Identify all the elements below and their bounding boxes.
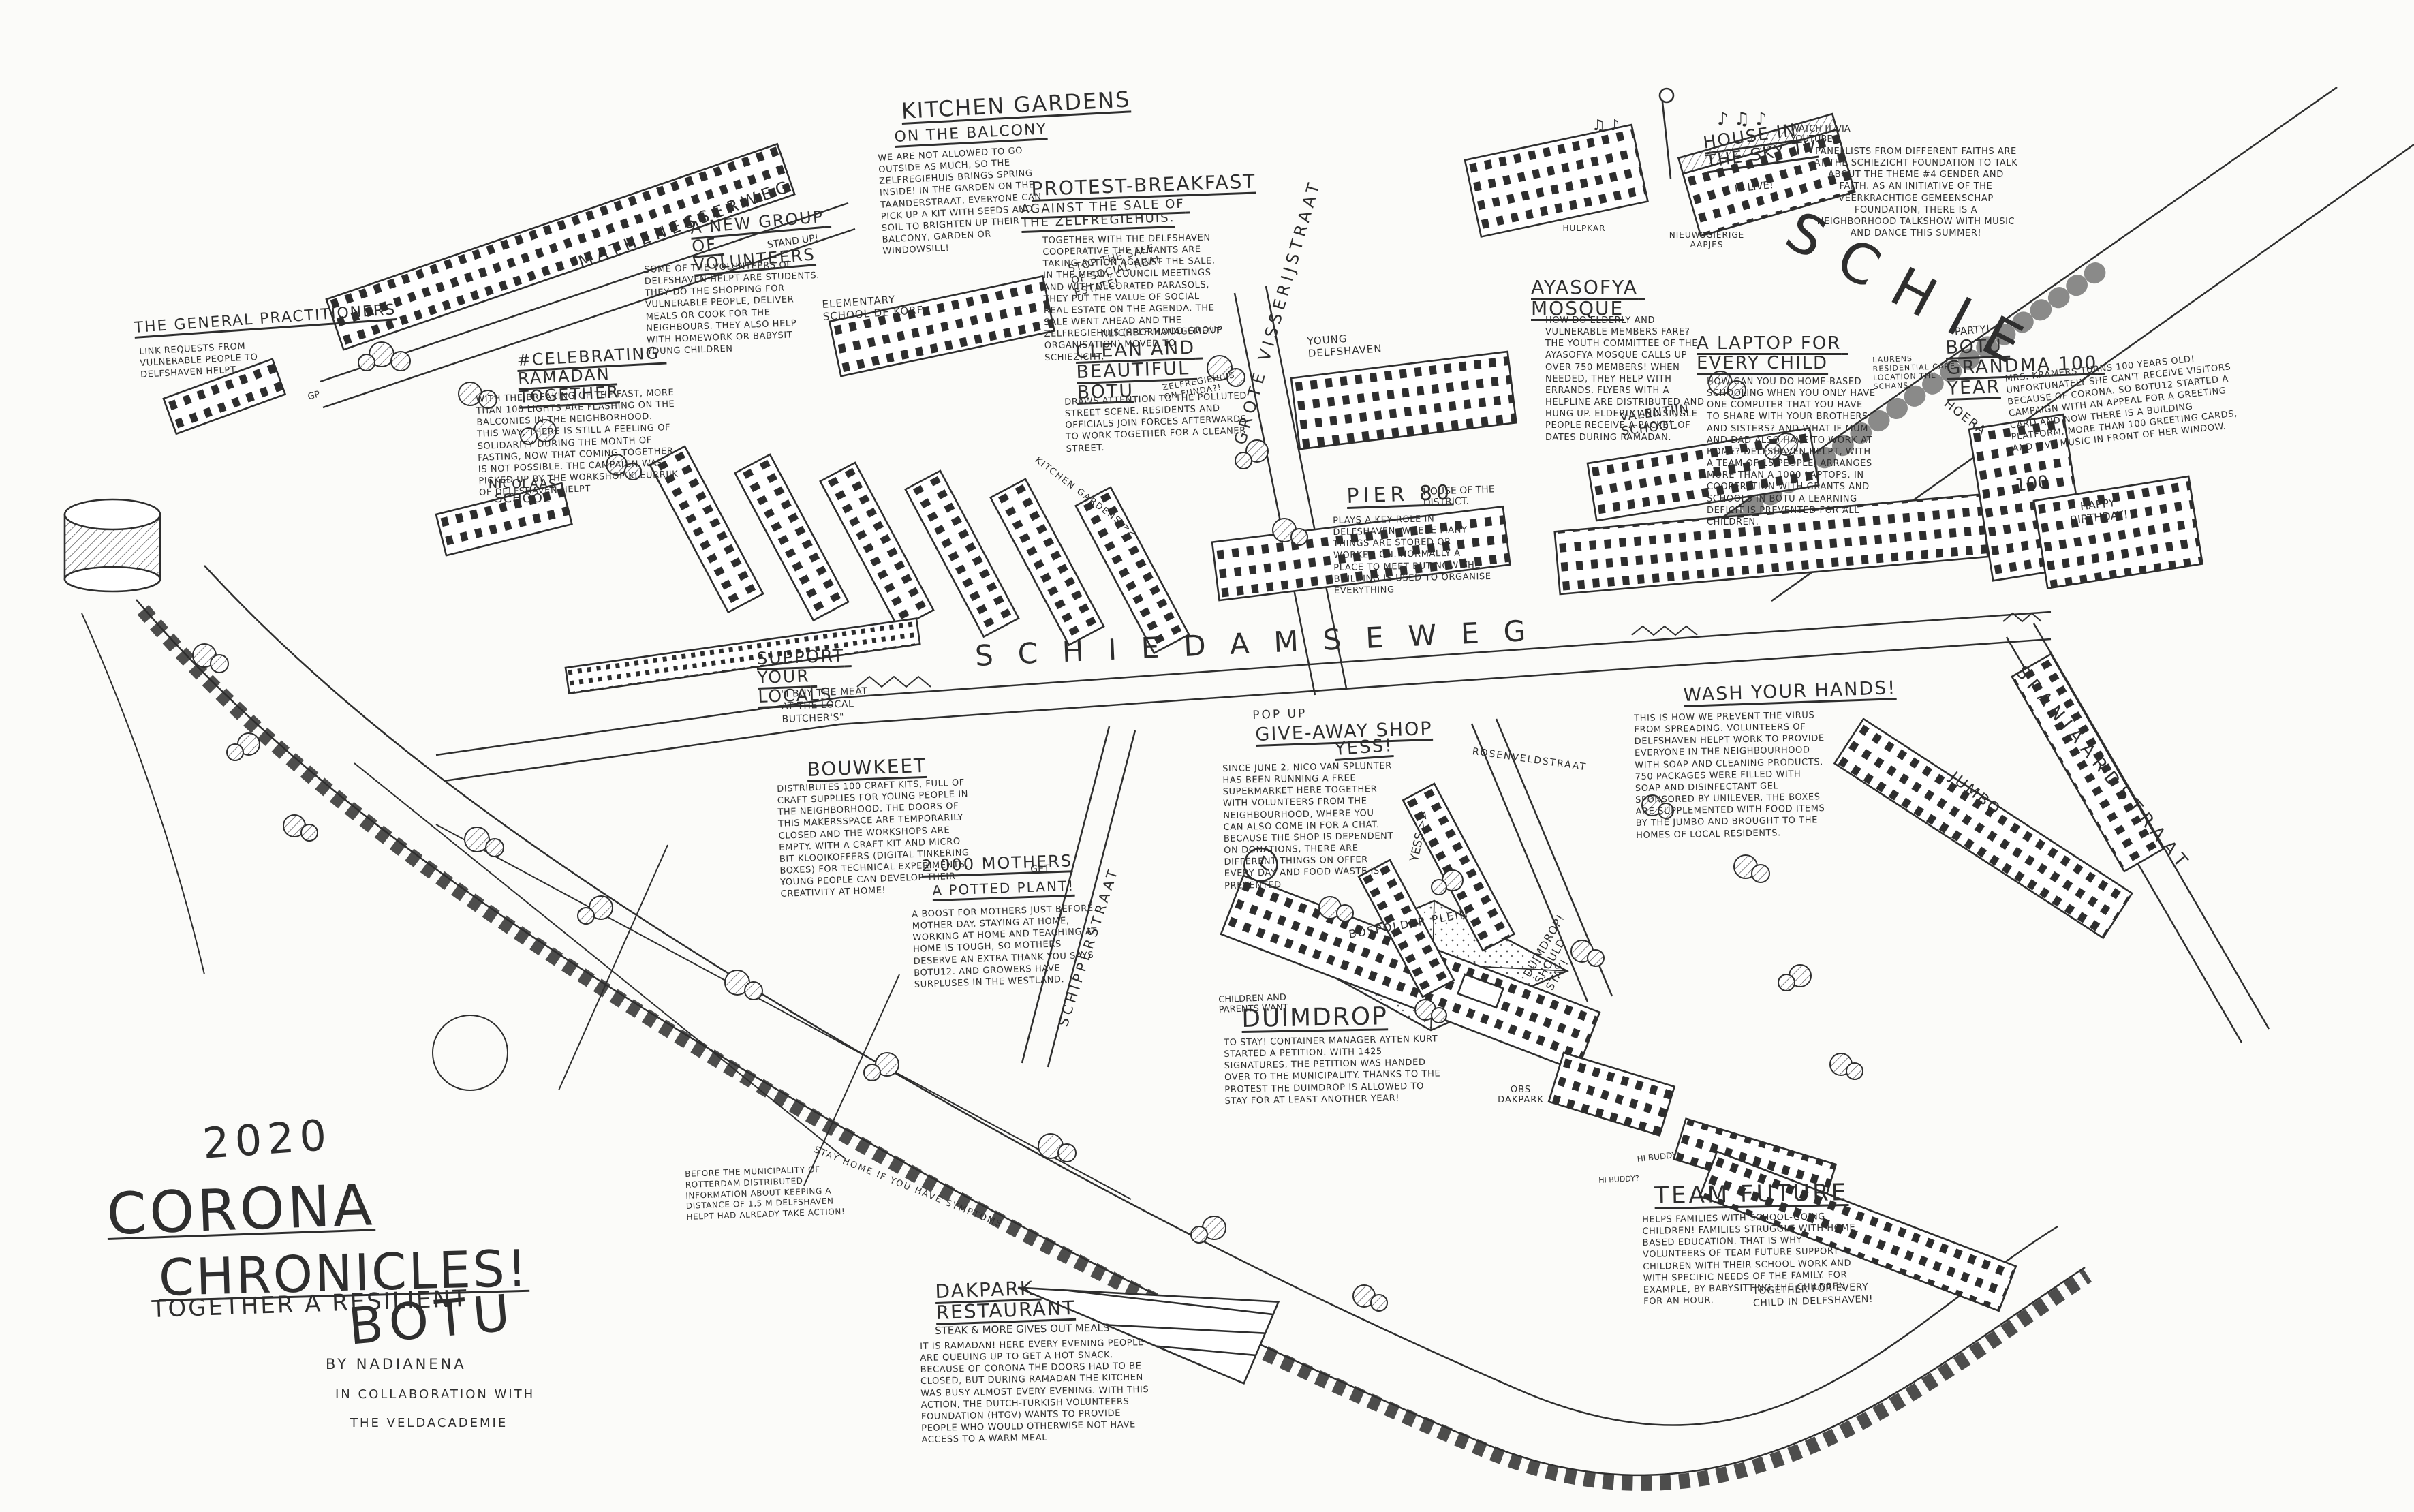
story-laptop-title: A LAPTOP FOR EVERY CHILD bbox=[1697, 334, 1846, 373]
sign-100-banner: 100 bbox=[2014, 472, 2050, 496]
story-giveaway-kicker: POP UP bbox=[1252, 707, 1307, 722]
story-giveaway-body: SINCE JUNE 2, NICO VAN SPLUNTER HAS BEEN… bbox=[1222, 760, 1395, 892]
place-nieuwsgierige-aapjes: NIEUWSGIERIGE AAPJES bbox=[1662, 230, 1751, 249]
story-laptop-body: HOW CAN YOU DO HOME-BASED SCHOOLING WHEN… bbox=[1707, 376, 1877, 528]
mosque-minaret bbox=[1660, 89, 1673, 179]
building-ayasofya-mosque bbox=[1465, 125, 1647, 236]
story-support-locals-quote: "I BUY THE MEAT AT THE LOCAL BUTCHER'S" bbox=[781, 685, 884, 726]
story-team-future-title: TEAM FUTURE bbox=[1654, 1179, 1848, 1209]
story-ayasofya-body: HOW DO ELDERLY AND VULNERABLE MEMBERS FA… bbox=[1545, 315, 1705, 444]
story-mothers-note: GET bbox=[1030, 863, 1050, 875]
story-clean-beautiful-body: DRAWS ATTENTION TO THE POLLUTED STREET S… bbox=[1064, 390, 1257, 455]
illustrated-map-botu: 2020 CORONA CHRONICLES! TOGETHER A RESIL… bbox=[0, 0, 2414, 1512]
story-ramadan-body: WITH THE BREAKING OF THE FAST, MORE THAN… bbox=[476, 387, 680, 499]
story-distance-note-body: BEFORE THE MUNICIPALITY OF ROTTERDAM DIS… bbox=[685, 1164, 847, 1223]
street-schipperstraat-lines bbox=[1022, 726, 1135, 1067]
story-giveaway-note: YESS! bbox=[1334, 736, 1394, 760]
place-obs-dakpark: OBS DAKPARK bbox=[1494, 1085, 1548, 1105]
story-pier80-subtitle: HOUSE OF THE DISTRICT. bbox=[1423, 484, 1505, 508]
place-hulpkar: HULPKAR bbox=[1560, 223, 1608, 233]
artwork-title-line1: CORONA bbox=[106, 1173, 376, 1246]
artwork-credit-collab: IN COLLABORATION WITH bbox=[335, 1387, 535, 1402]
story-sky-tv-hint: WATCH IT VIA YOUTUBE bbox=[1791, 124, 1859, 144]
artwork-year: 2020 bbox=[201, 1110, 333, 1169]
story-dakpark-restaurant-title: DAKPARK RESTAURANT bbox=[935, 1276, 1086, 1323]
story-mothers-body: A BOOST FOR MOTHERS JUST BEFORE MOTHER D… bbox=[912, 902, 1102, 991]
water-tower bbox=[65, 499, 160, 591]
story-team-future-note: TOGETHER FOR EVERY CHILD IN DELFSHAVEN! bbox=[1752, 1280, 1896, 1310]
story-kitchen-gardens-body: WE ARE NOT ALLOWED TO GO OUTSIDE AS MUCH… bbox=[878, 144, 1057, 258]
artwork-credit-by: BY NADIANENA bbox=[326, 1356, 467, 1372]
building-young-delfshaven bbox=[1291, 352, 1516, 449]
story-pier80-body: PLAYS A KEY ROLE IN DELFSHAVEN, WHERE MA… bbox=[1333, 512, 1494, 597]
story-ayasofya-title: AYASOFYA MOSQUE bbox=[1531, 277, 1654, 320]
artwork-credit-veldacademie: THE VELDACADEMIE bbox=[350, 1416, 508, 1430]
story-duimdrop-body: TO STAY! CONTAINER MANAGER AYTEN KURT ST… bbox=[1224, 1033, 1450, 1107]
story-dakpark-restaurant-body: IT IS RAMADAN! HERE EVERY EVENING PEOPLE… bbox=[920, 1337, 1154, 1446]
story-duimdrop-title: DUIMDROP bbox=[1241, 1003, 1388, 1033]
story-sky-tv-body: PANELLISTS FROM DIFFERENT FAITHS ARE AT … bbox=[1814, 146, 2018, 239]
story-bouwkeet-title: BOUWKEET bbox=[807, 755, 927, 780]
music-notes-icon-2: ♫ ♪ bbox=[1592, 117, 1620, 134]
story-wash-hands-body: THIS IS HOW WE PREVENT THE VIRUS FROM SP… bbox=[1634, 709, 1827, 842]
